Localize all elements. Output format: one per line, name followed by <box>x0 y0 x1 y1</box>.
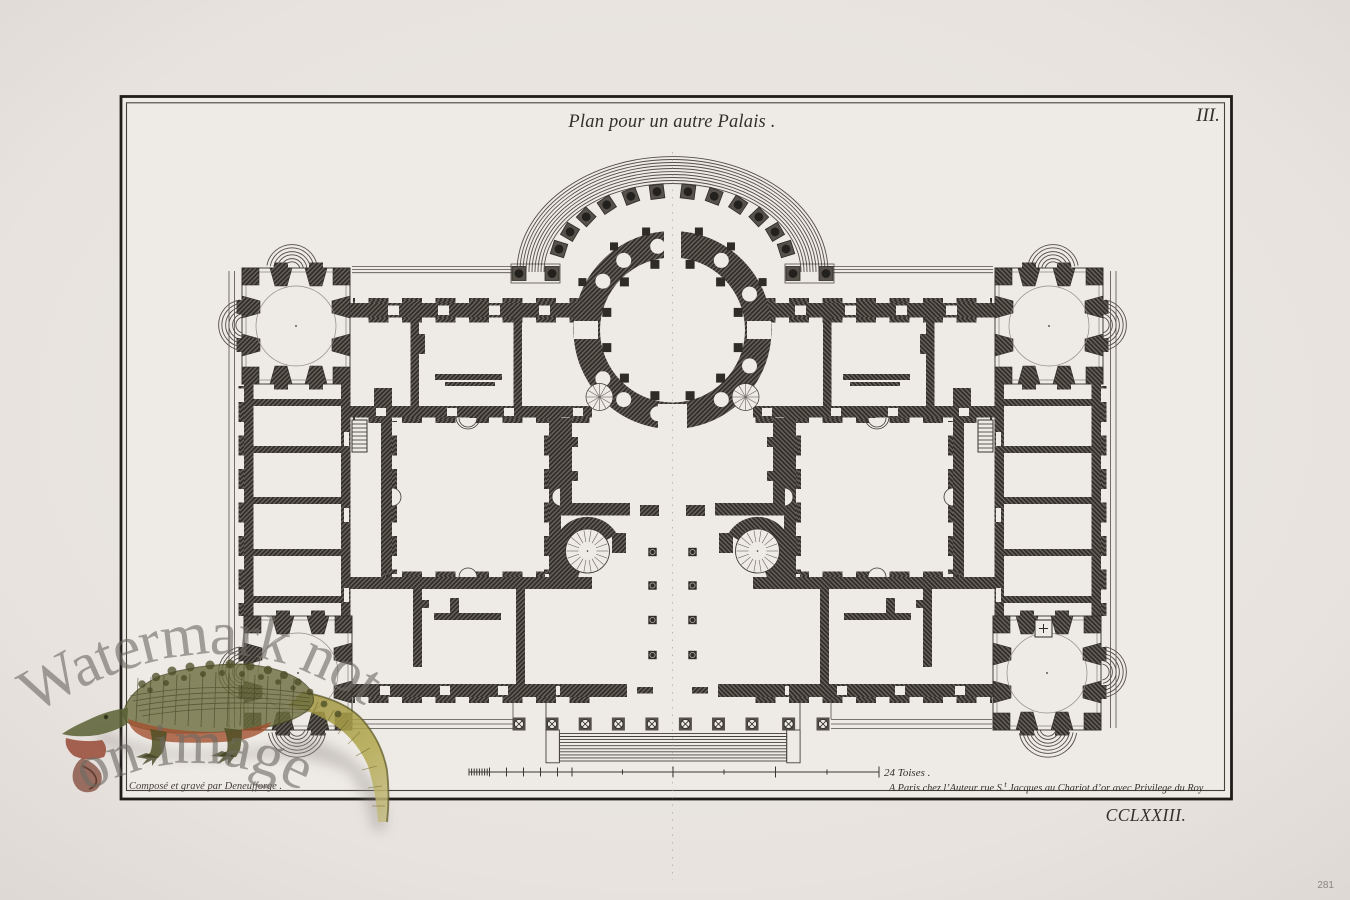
svg-text:A Paris chez l’Auteur rue S.t: A Paris chez l’Auteur rue S.t Jacques au… <box>888 780 1204 794</box>
svg-text:III.: III. <box>1195 105 1220 126</box>
svg-text:24 Toises .: 24 Toises . <box>884 767 930 779</box>
svg-text:CCLXXIII.: CCLXXIII. <box>1106 805 1187 825</box>
svg-text:281: 281 <box>1317 880 1334 891</box>
svg-text:Plan pour un autre Palais .: Plan pour un autre Palais . <box>567 112 775 132</box>
